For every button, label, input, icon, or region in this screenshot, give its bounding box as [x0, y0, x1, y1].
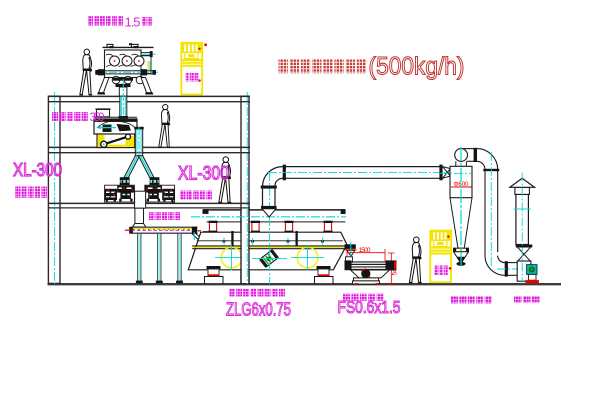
svg-text:XL-300: XL-300 [13, 160, 62, 180]
svg-text:1500: 1500 [359, 247, 371, 254]
svg-text:ZLG6x0.75: ZLG6x0.75 [226, 300, 291, 320]
svg-text:FS0.6x1.5: FS0.6x1.5 [338, 297, 401, 317]
svg-text:(500kg/h): (500kg/h) [369, 53, 465, 81]
svg-text:XL-300: XL-300 [178, 164, 229, 185]
svg-text:1.5: 1.5 [125, 15, 141, 30]
svg-text:350: 350 [90, 112, 105, 124]
